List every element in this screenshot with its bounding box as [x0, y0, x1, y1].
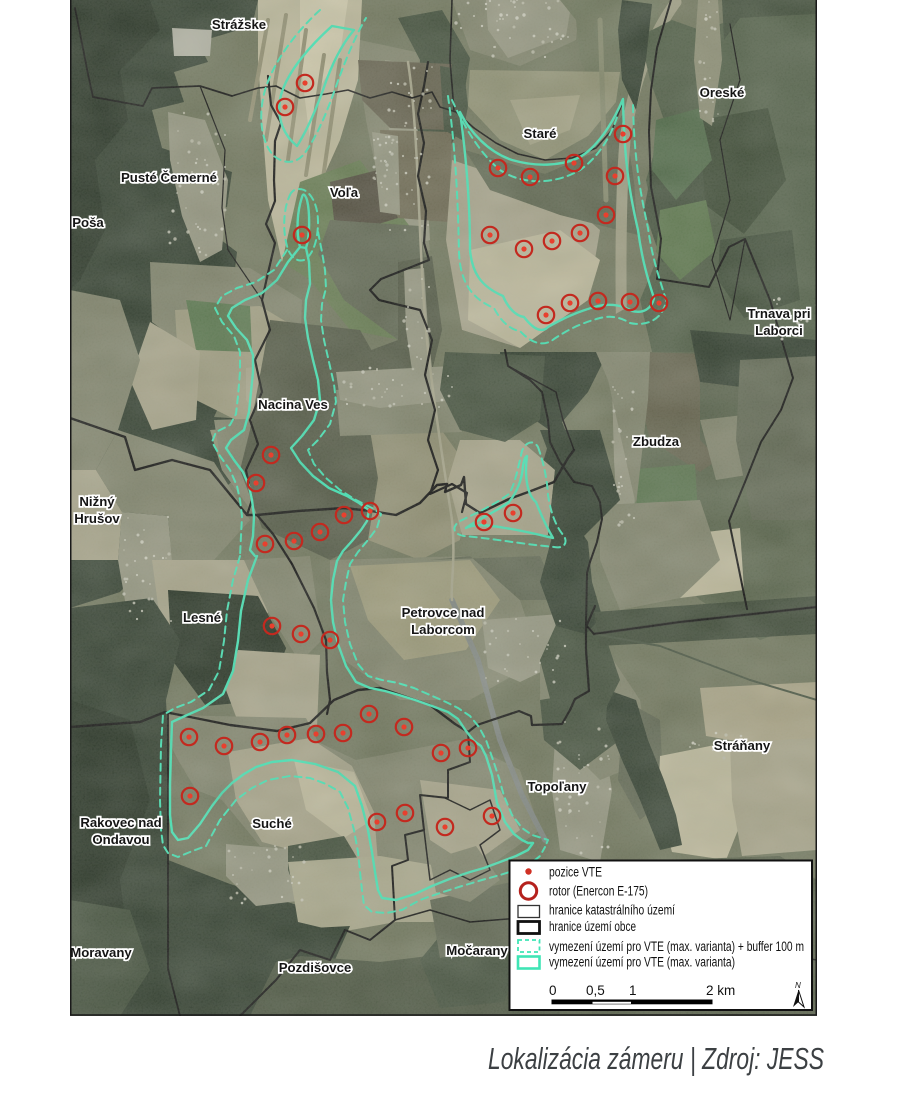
svg-text:Petrovce nad: Petrovce nad — [402, 605, 485, 620]
svg-text:Laborcom: Laborcom — [411, 622, 475, 637]
svg-text:rotor (Enercon E-175): rotor (Enercon E-175) — [549, 884, 648, 899]
svg-text:Poša: Poša — [72, 215, 104, 230]
svg-text:Suché: Suché — [252, 816, 292, 831]
svg-text:0,5: 0,5 — [586, 983, 605, 998]
svg-text:Zbudza: Zbudza — [633, 434, 680, 449]
svg-text:0: 0 — [549, 983, 557, 998]
svg-text:Močarany: Močarany — [446, 943, 508, 958]
svg-text:Voľa: Voľa — [330, 185, 359, 200]
svg-text:Lokalizácia zámeru | Zdroj: JE: Lokalizácia zámeru | Zdroj: JESS — [488, 1041, 824, 1076]
svg-text:Pozdišovce: Pozdišovce — [279, 960, 352, 975]
svg-text:Nacina Ves: Nacina Ves — [258, 397, 328, 412]
svg-text:Nižný: Nižný — [79, 494, 115, 509]
svg-text:Moravany: Moravany — [70, 945, 132, 960]
svg-text:Pusté Čemerné: Pusté Čemerné — [121, 170, 217, 185]
svg-text:Ondavou: Ondavou — [92, 832, 149, 847]
svg-text:Hrušov: Hrušov — [74, 511, 120, 526]
svg-text:pozice VTE: pozice VTE — [549, 865, 602, 880]
svg-text:Rakovec nad: Rakovec nad — [80, 815, 161, 830]
svg-text:Topoľany: Topoľany — [527, 779, 587, 794]
svg-text:hranice katastrálního území: hranice katastrálního území — [549, 903, 675, 918]
svg-text:hranice území obce: hranice území obce — [549, 919, 636, 934]
svg-text:vymezení území pro VTE (max. v: vymezení území pro VTE (max. varianta) — [549, 955, 735, 970]
svg-text:Laborci: Laborci — [755, 323, 803, 338]
svg-text:N: N — [795, 981, 801, 990]
svg-text:1: 1 — [629, 983, 637, 998]
svg-text:Strážske: Strážske — [212, 17, 266, 32]
svg-text:Trnava pri: Trnava pri — [747, 306, 810, 321]
svg-text:Staré: Staré — [524, 126, 557, 141]
svg-text:Stráňany: Stráňany — [714, 738, 771, 753]
svg-text:vymezení území pro VTE (max. v: vymezení území pro VTE (max. varianta) +… — [549, 939, 804, 954]
svg-text:Oreské: Oreské — [700, 85, 745, 100]
svg-text:2 km: 2 km — [706, 983, 735, 998]
svg-text:Lesné: Lesné — [183, 610, 221, 625]
